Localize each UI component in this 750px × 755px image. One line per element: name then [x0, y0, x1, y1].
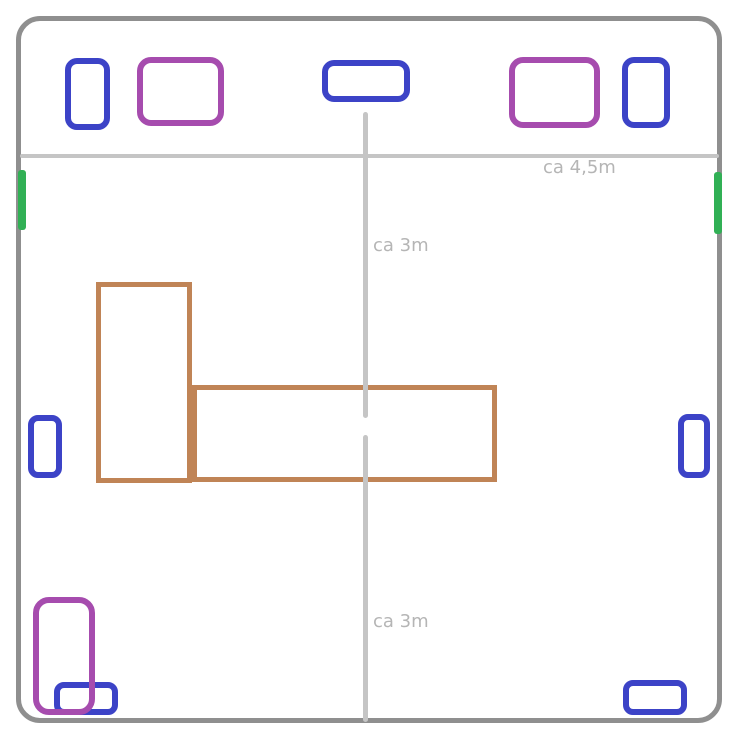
green-wall-marker-left — [18, 170, 26, 230]
label-room-width: ca 4,5m — [543, 158, 616, 178]
green-wall-marker-right — [714, 172, 722, 234]
vertical-guide-top — [363, 112, 368, 418]
blue-cabinet-top-right — [622, 57, 670, 128]
label-room-depth-top: ca 3m — [373, 236, 429, 256]
purple-cabinet-top-right — [509, 57, 600, 128]
label-room-depth-bottom: ca 3m — [373, 612, 429, 632]
blue-unit-bottom-right — [623, 680, 687, 715]
floor-plan-canvas: ca 4,5mca 3mca 3m — [0, 0, 750, 755]
blue-cabinet-top-center — [322, 60, 410, 102]
brown-table-right-section — [192, 385, 497, 482]
vertical-guide-bottom — [363, 435, 368, 722]
purple-unit-bottom-left — [33, 597, 95, 715]
brown-table-left-section — [96, 282, 192, 483]
blue-unit-mid-right — [678, 414, 710, 478]
blue-cabinet-top-left — [65, 58, 110, 130]
blue-unit-mid-left — [28, 415, 62, 478]
purple-cabinet-top-left — [137, 57, 224, 126]
